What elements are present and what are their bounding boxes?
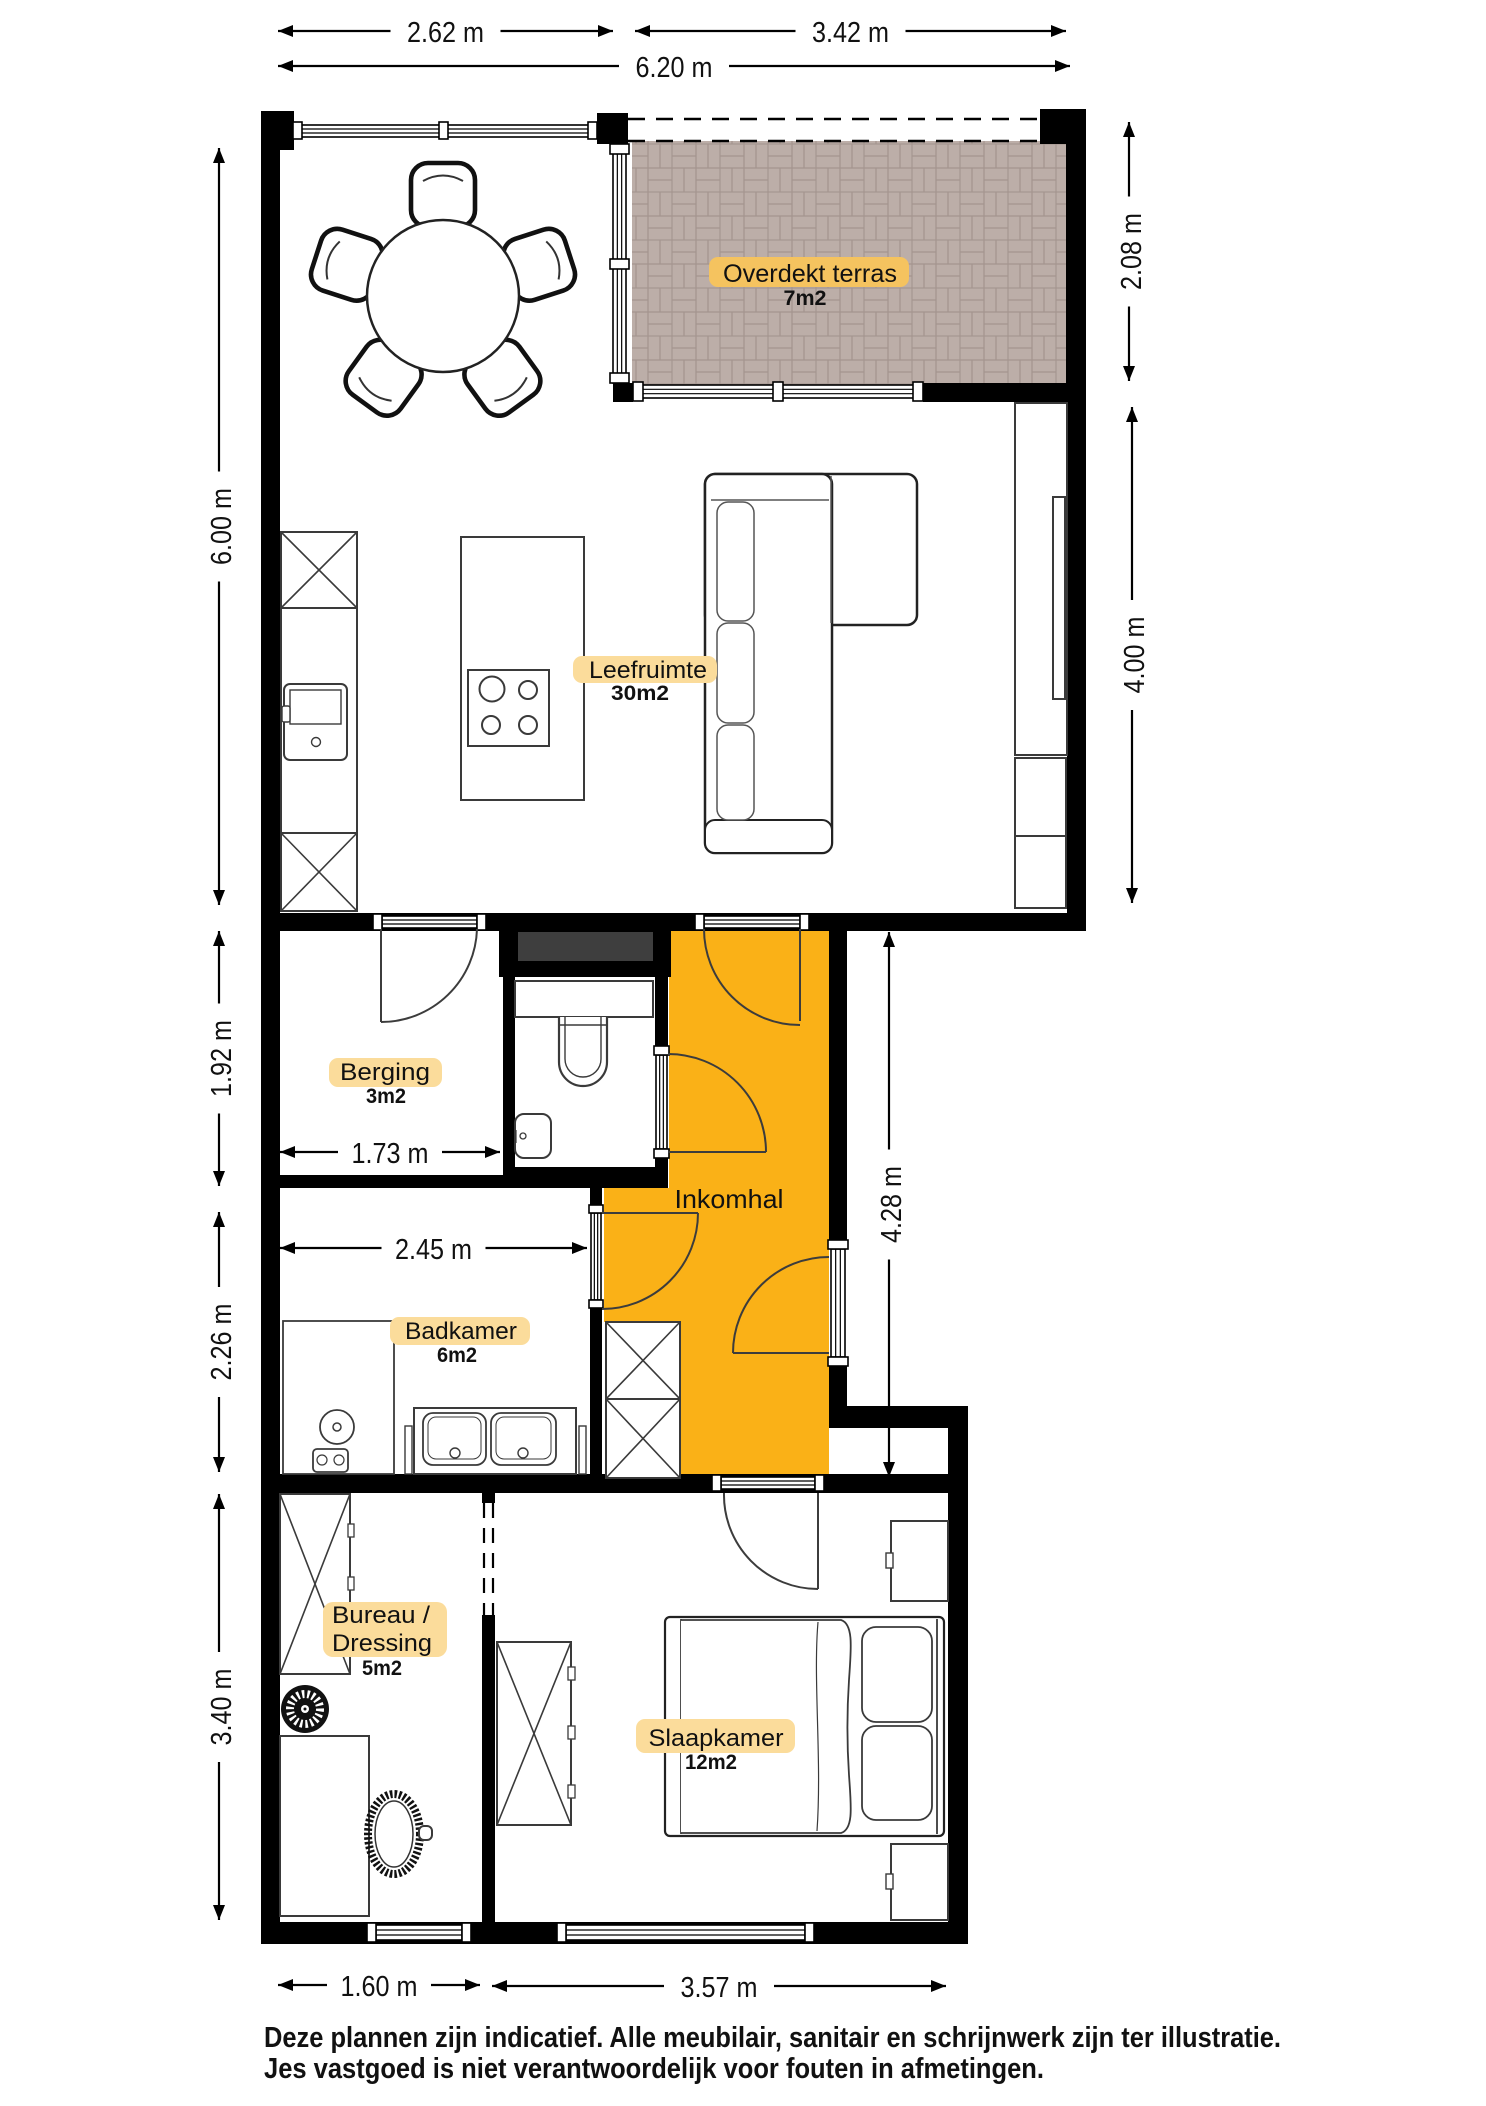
svg-text:2.08 m: 2.08 m [1116, 213, 1148, 290]
svg-text:Deze plannen zijn indicatief.: Deze plannen zijn indicatief. Alle meubi… [264, 2022, 1281, 2054]
svg-text:7m2: 7m2 [784, 286, 827, 310]
svg-text:5m2: 5m2 [362, 1656, 402, 1680]
svg-text:Dressing: Dressing [332, 1630, 432, 1657]
svg-text:1.60 m: 1.60 m [341, 1971, 418, 2003]
svg-text:2.45 m: 2.45 m [395, 1234, 472, 1266]
svg-text:12m2: 12m2 [685, 1750, 737, 1774]
svg-text:3m2: 3m2 [366, 1084, 406, 1108]
svg-text:Slaapkamer: Slaapkamer [649, 1725, 784, 1752]
svg-text:4.28 m: 4.28 m [876, 1166, 908, 1243]
svg-text:Berging: Berging [340, 1059, 430, 1086]
svg-text:2.62 m: 2.62 m [407, 17, 484, 49]
svg-text:4.00 m: 4.00 m [1119, 617, 1151, 694]
svg-text:Inkomhal: Inkomhal [675, 1184, 784, 1214]
svg-text:Leefruimte: Leefruimte [589, 657, 707, 684]
svg-text:2.26 m: 2.26 m [206, 1304, 238, 1381]
svg-text:3.57 m: 3.57 m [681, 1972, 758, 2004]
svg-text:6m2: 6m2 [437, 1343, 477, 1367]
svg-text:1.73 m: 1.73 m [352, 1138, 429, 1170]
svg-text:Overdekt terras: Overdekt terras [723, 260, 897, 288]
svg-text:6.00 m: 6.00 m [206, 488, 238, 565]
svg-text:Badkamer: Badkamer [405, 1318, 517, 1345]
svg-text:30m2: 30m2 [611, 681, 669, 705]
svg-text:Bureau /: Bureau / [332, 1602, 430, 1629]
svg-text:Jes vastgoed is niet verantwoo: Jes vastgoed is niet verantwoordelijk vo… [264, 2053, 1044, 2085]
svg-text:3.40 m: 3.40 m [206, 1669, 238, 1746]
svg-text:6.20 m: 6.20 m [636, 52, 713, 84]
svg-text:3.42 m: 3.42 m [812, 17, 889, 49]
svg-text:1.92 m: 1.92 m [206, 1020, 238, 1097]
